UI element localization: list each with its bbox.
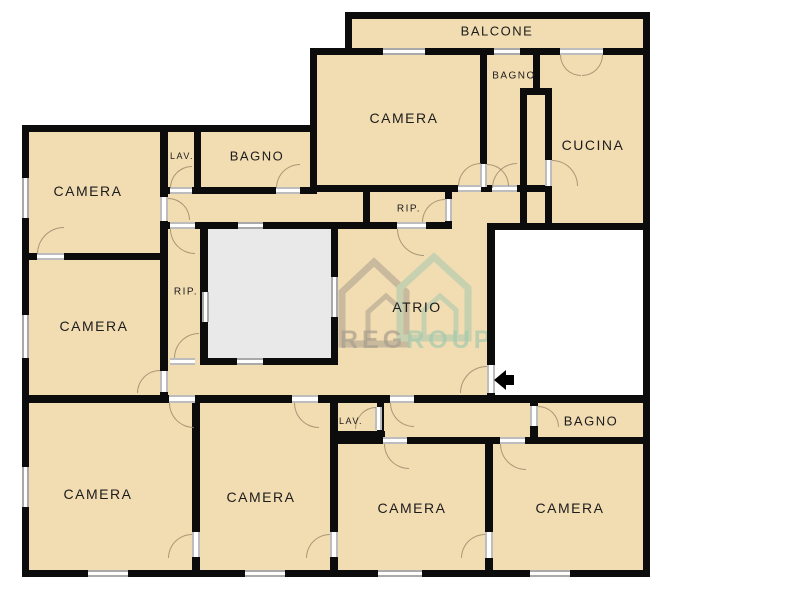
wall-segment xyxy=(345,12,650,19)
room-label-rip_top: RIP. xyxy=(397,204,421,215)
window xyxy=(22,315,29,358)
wall-segment xyxy=(643,12,650,577)
room-label-cucina: CUCINA xyxy=(562,137,625,153)
door-opening xyxy=(160,371,168,392)
room-label-camera_b4: CAMERA xyxy=(536,500,605,516)
door-opening xyxy=(375,407,382,430)
wall-segment xyxy=(22,125,317,132)
door-opening xyxy=(160,197,168,221)
entrance-arrow-tail xyxy=(505,375,514,385)
window xyxy=(530,570,570,577)
window xyxy=(202,292,209,322)
floorplan-canvas: REGROUP BALCONECAMERABAGNOCUCINACAMERALA… xyxy=(0,0,800,600)
door-opening xyxy=(530,406,538,426)
wall-segment xyxy=(194,131,201,194)
door-opening xyxy=(458,185,481,192)
watermark-text-gray: REG xyxy=(340,326,406,354)
wall-segment xyxy=(363,192,370,229)
door-opening xyxy=(445,199,452,221)
door-opening xyxy=(485,532,493,558)
room-label-camera_tm: CAMERA xyxy=(370,110,439,126)
door-opening xyxy=(170,187,192,194)
room-label-bagno_top: BAGNO xyxy=(492,71,536,82)
watermark-text-green: ROUP xyxy=(406,326,494,354)
door-opening xyxy=(37,253,64,260)
room-label-camera_tl: CAMERA xyxy=(54,183,123,199)
door-opening xyxy=(390,395,414,403)
window xyxy=(88,570,128,577)
room-label-balcone: BALCONE xyxy=(461,24,534,39)
door-opening xyxy=(292,395,318,403)
room-label-camera_b2: CAMERA xyxy=(227,489,296,505)
room-label-bagno_br: BAGNO xyxy=(564,414,618,429)
room-label-lav_b: LAV. xyxy=(339,416,363,426)
watermark-text: REGROUP xyxy=(340,326,494,355)
door-opening xyxy=(170,222,195,229)
door-opening xyxy=(480,164,487,187)
wall-segment xyxy=(487,223,650,230)
window xyxy=(378,570,422,577)
window xyxy=(238,222,263,229)
window xyxy=(494,48,520,55)
room-label-lav_top: LAV. xyxy=(170,151,194,161)
door-opening xyxy=(276,187,300,194)
window xyxy=(331,277,338,317)
window xyxy=(245,570,285,577)
window xyxy=(22,178,29,218)
room-label-camera_b1: CAMERA xyxy=(64,486,133,502)
wall-segment xyxy=(520,88,552,95)
door-opening xyxy=(330,532,338,557)
door-opening xyxy=(383,437,407,444)
stairwell-shaft xyxy=(208,229,331,358)
wall-segment xyxy=(520,95,527,230)
room-label-camera_ml: CAMERA xyxy=(60,318,129,334)
wall-segment xyxy=(160,125,168,403)
room-label-bagno_tl: BAGNO xyxy=(230,149,284,164)
door-opening xyxy=(192,532,200,557)
door-opening xyxy=(169,395,195,403)
door-opening xyxy=(170,358,195,365)
room-label-rip_left: RIP. xyxy=(174,287,198,298)
window xyxy=(22,467,29,507)
wall-segment xyxy=(310,48,317,192)
wall-segment xyxy=(200,358,338,365)
door-opening xyxy=(500,437,525,444)
room-label-camera_b3: CAMERA xyxy=(378,500,447,516)
door-opening xyxy=(397,222,426,229)
door-opening xyxy=(560,48,603,55)
wall-segment xyxy=(22,395,650,403)
window xyxy=(383,48,425,55)
window xyxy=(237,358,263,365)
door-opening xyxy=(545,160,552,186)
room-label-atrio: ATRIO xyxy=(392,299,441,315)
